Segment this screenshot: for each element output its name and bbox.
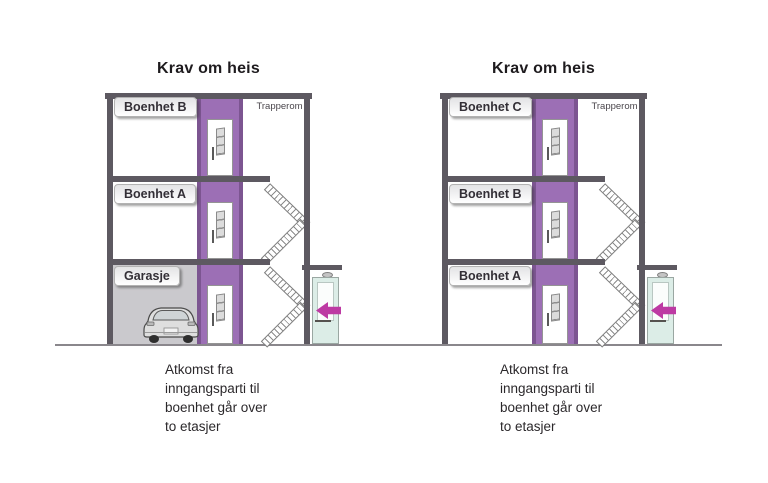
caption-line: boenhet går over xyxy=(500,398,602,417)
diagram-title: Krav om heis xyxy=(107,60,310,78)
elevator-door xyxy=(207,202,233,259)
elevator-door-window xyxy=(551,293,560,321)
diagram-right: Krav om heis Boenhet C xyxy=(442,60,692,460)
shaft-wall-right xyxy=(239,99,243,344)
stairwell-label: Trapperom xyxy=(252,101,307,112)
elevator-door-handle xyxy=(547,313,549,326)
shaft-wall-left xyxy=(532,99,536,344)
elevator-door-handle xyxy=(547,230,549,243)
floor-label: Boenhet B xyxy=(114,97,197,117)
car-icon xyxy=(140,304,202,344)
exterior-wall-left xyxy=(107,93,113,344)
elevator-shaft xyxy=(532,99,578,344)
floor-slab xyxy=(107,176,270,182)
caption: Atkomst fra inngangsparti til boenhet gå… xyxy=(500,360,602,436)
elevator-door xyxy=(542,119,568,176)
floor-label: Boenhet C xyxy=(449,97,532,117)
floor-label: Boenhet B xyxy=(449,184,532,204)
entrance-door-handle xyxy=(650,320,666,322)
elevator-shaft xyxy=(197,99,243,344)
entrance-door-handle xyxy=(315,320,331,322)
elevator-door-window xyxy=(216,293,225,321)
stairs-flight xyxy=(596,302,642,348)
caption-line: inngangsparti til xyxy=(165,379,267,398)
caption-line: boenhet går over xyxy=(165,398,267,417)
elevator-door-handle xyxy=(547,147,549,160)
caption-line: Atkomst fra xyxy=(500,360,602,379)
elevator-door-window xyxy=(216,210,225,238)
elevator-door xyxy=(207,285,233,344)
elevator-door-handle xyxy=(212,147,214,160)
caption-line: to etasjer xyxy=(165,417,267,436)
stairs-flight xyxy=(261,302,307,348)
elevator-door xyxy=(207,119,233,176)
elevator-door xyxy=(542,202,568,259)
stairs-flight xyxy=(261,219,307,265)
diagram-title: Krav om heis xyxy=(442,60,645,78)
shaft-wall-right xyxy=(574,99,578,344)
floor-slab xyxy=(442,259,605,265)
elevator-door-window xyxy=(216,127,225,155)
elevator-door-handle xyxy=(212,313,214,326)
stairs-flight xyxy=(596,219,642,265)
caption-line: to etasjer xyxy=(500,417,602,436)
floor-label: Boenhet A xyxy=(114,184,196,204)
elevator-door xyxy=(542,285,568,344)
caption: Atkomst fra inngangsparti til boenhet gå… xyxy=(165,360,267,436)
floor-label: Garasje xyxy=(114,266,180,286)
ground-line xyxy=(55,344,722,346)
exterior-wall-right xyxy=(639,93,645,344)
stairwell-label: Trapperom xyxy=(587,101,642,112)
exterior-wall-left xyxy=(442,93,448,344)
caption-line: Atkomst fra xyxy=(165,360,267,379)
floor-slab xyxy=(107,259,270,265)
diagram-left: Krav om heis Boenhet xyxy=(107,60,357,460)
exterior-wall-right xyxy=(304,93,310,344)
elevator-door-window xyxy=(551,210,560,238)
caption-line: inngangsparti til xyxy=(500,379,602,398)
elevator-door-handle xyxy=(212,230,214,243)
elevator-door-window xyxy=(551,127,560,155)
building-elevator-requirement-diagram: Krav om heis Boenhet xyxy=(0,0,768,483)
floor-slab xyxy=(442,176,605,182)
floor-label: Boenhet A xyxy=(449,266,531,286)
